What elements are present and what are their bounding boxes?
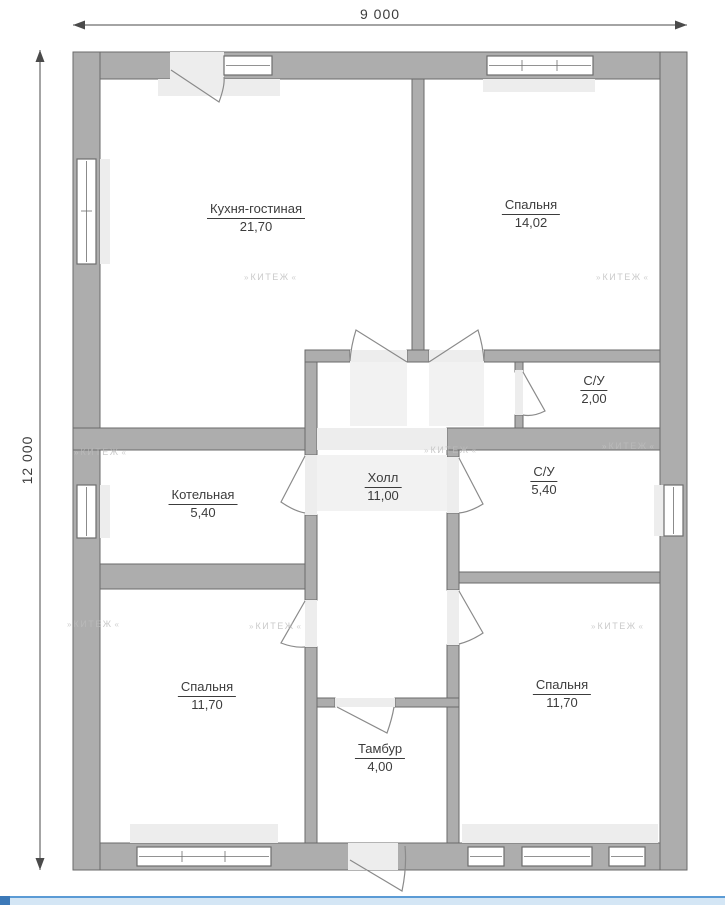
room-area: 21,70 [207,219,305,235]
room-area: 14,02 [502,215,560,231]
room-label-wc-small: С/У 2,00 [580,374,607,406]
room-label-boiler-room: Котельная 5,40 [169,488,238,520]
watermark: »КИТЕЖ« [591,621,643,631]
door-boiler [281,456,305,513]
room-name: С/У [580,374,607,391]
room-name: С/У [530,465,557,482]
room-area: 2,00 [580,391,607,407]
room-name: Спальня [533,678,591,695]
watermark: »КИТЕЖ« [67,619,119,629]
room-area: 11,70 [178,697,236,713]
dimension-width-label: 9 000 [360,6,400,22]
door-vestibule [337,707,394,733]
room-label-kitchen-living: Кухня-гостиная 21,70 [207,202,305,234]
window-left-boiler [77,485,96,538]
watermark: »КИТЕЖ« [596,272,648,282]
room-name: Спальня [502,198,560,215]
room-label-bedroom-bottom-left: Спальня 11,70 [178,680,236,712]
room-label-wc-large: С/У 5,40 [530,465,557,497]
floor-plan: 9 000 12 000 Кухня-гостиная 21,70 Спальн… [0,0,725,905]
door-wc-small [523,372,545,416]
door-bedroom-right [459,591,483,644]
horizontal-scrollbar-track[interactable] [0,896,725,905]
room-label-bedroom-bottom-right: Спальня 11,70 [533,678,591,710]
watermark: »КИТЕЖ« [424,445,476,455]
window-top-bedroom [487,56,593,75]
window-bottom-right-3 [609,847,645,866]
window-top-kitchen [224,56,272,75]
watermark: »КИТЕЖ« [249,621,301,631]
watermark: »КИТЕЖ« [74,447,126,457]
room-area: 4,00 [355,759,405,775]
room-area: 5,40 [530,482,557,498]
room-label-vestibule: Тамбур 4,00 [355,742,405,774]
door-wc-large [459,458,483,513]
room-name: Тамбур [355,742,405,759]
watermark: »КИТЕЖ« [244,272,296,282]
window-bottom-right-1 [468,847,504,866]
room-area: 11,70 [533,695,591,711]
room-name: Холл [365,471,402,488]
dimension-height-label: 12 000 [19,436,35,485]
room-area: 11,00 [365,488,402,504]
window-right-wc [664,485,683,536]
window-bottom-right-2 [522,847,592,866]
room-name: Спальня [178,680,236,697]
room-name: Кухня-гостиная [207,202,305,219]
room-name: Котельная [169,488,238,505]
window-bottom-left-bedroom [137,847,271,866]
horizontal-scrollbar-thumb[interactable] [0,896,10,905]
room-label-hall: Холл 11,00 [365,471,402,503]
room-area: 5,40 [169,505,238,521]
room-label-bedroom-top-right: Спальня 14,02 [502,198,560,230]
watermark: »КИТЕЖ« [602,441,654,451]
window-left-kitchen [77,159,96,264]
